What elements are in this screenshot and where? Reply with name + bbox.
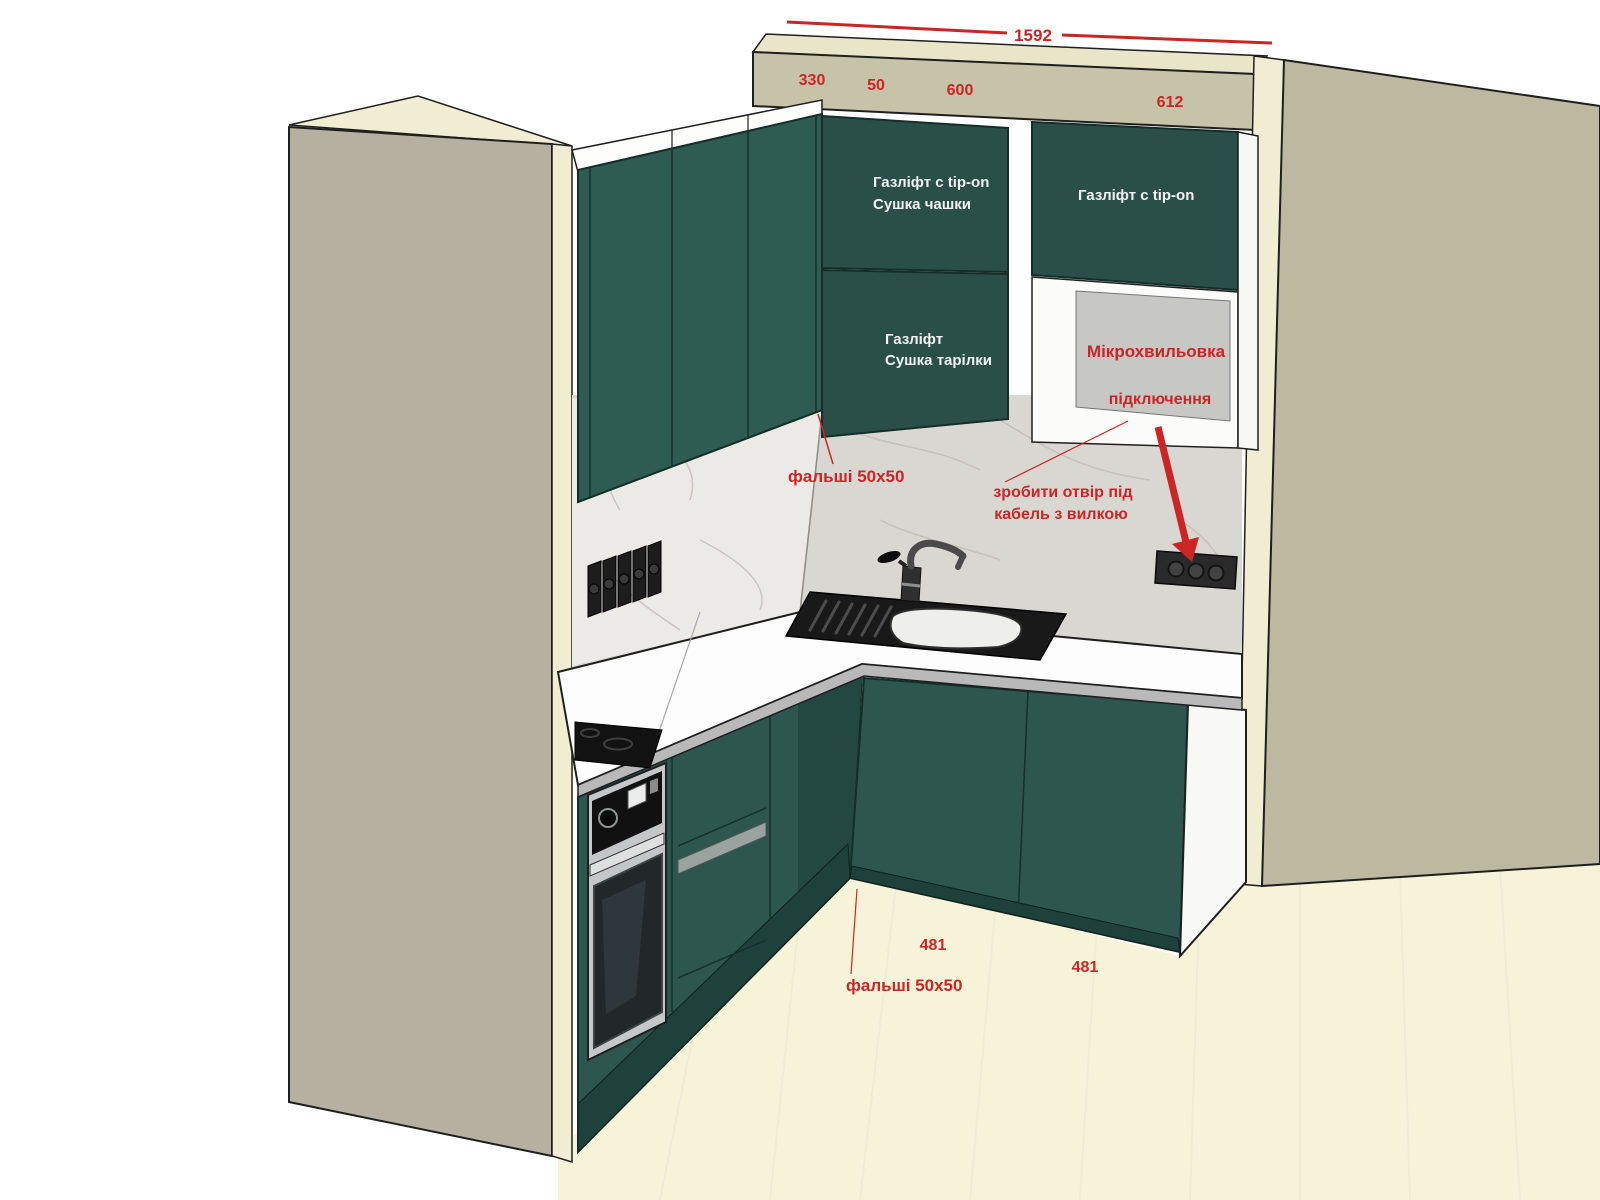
dimension-line-right	[1062, 35, 1272, 43]
upper-cabinet-door-right	[1032, 122, 1238, 290]
faucet-chrome-band	[902, 584, 920, 586]
dim-330: 330	[799, 72, 826, 90]
filler-note-bottom: фальші 50x50	[846, 976, 962, 996]
upper-cabinet-door-cups	[822, 116, 1008, 272]
hole-note-line1: зробити отвір під	[993, 484, 1132, 502]
filler-note-top: фальші 50x50	[788, 467, 904, 487]
dim-481-left: 481	[920, 937, 947, 955]
upper-cabinet-end-panel	[1238, 132, 1258, 450]
middle-left-door-label-line1: Газліфт	[885, 331, 943, 348]
kitchen-3d-scene	[0, 0, 1600, 1200]
right-wall	[1262, 60, 1600, 886]
left-wall-edge-strip	[552, 144, 572, 1162]
outlet-right	[1155, 551, 1237, 589]
hole-note-line2: кабель з вилкою	[994, 506, 1128, 524]
upper-left-door-label-line1: Газліфт с tip-on	[873, 174, 989, 191]
oven-knob	[599, 809, 617, 827]
dimension-line-left	[787, 22, 1007, 33]
kitchen-design-render: 1592 330 50 600 612 Газліфт с tip-on Суш…	[0, 0, 1600, 1200]
sink-bowl	[891, 609, 1022, 649]
microwave-note-line1: Мікрохвильовка	[1087, 342, 1225, 362]
dim-612: 612	[1157, 94, 1184, 112]
dim-481-right: 481	[1072, 959, 1099, 977]
dim-total-width: 1592	[1014, 26, 1052, 46]
microwave-note-line2: підключення	[1109, 391, 1212, 409]
upper-right-door-label: Газліфт с tip-on	[1078, 187, 1194, 204]
middle-left-door-label-line2: Сушка тарілки	[885, 352, 992, 369]
upper-left-door-label-line2: Сушка чашки	[873, 196, 971, 213]
left-wall	[289, 127, 552, 1156]
dim-50: 50	[867, 77, 885, 95]
dim-600: 600	[947, 82, 974, 100]
